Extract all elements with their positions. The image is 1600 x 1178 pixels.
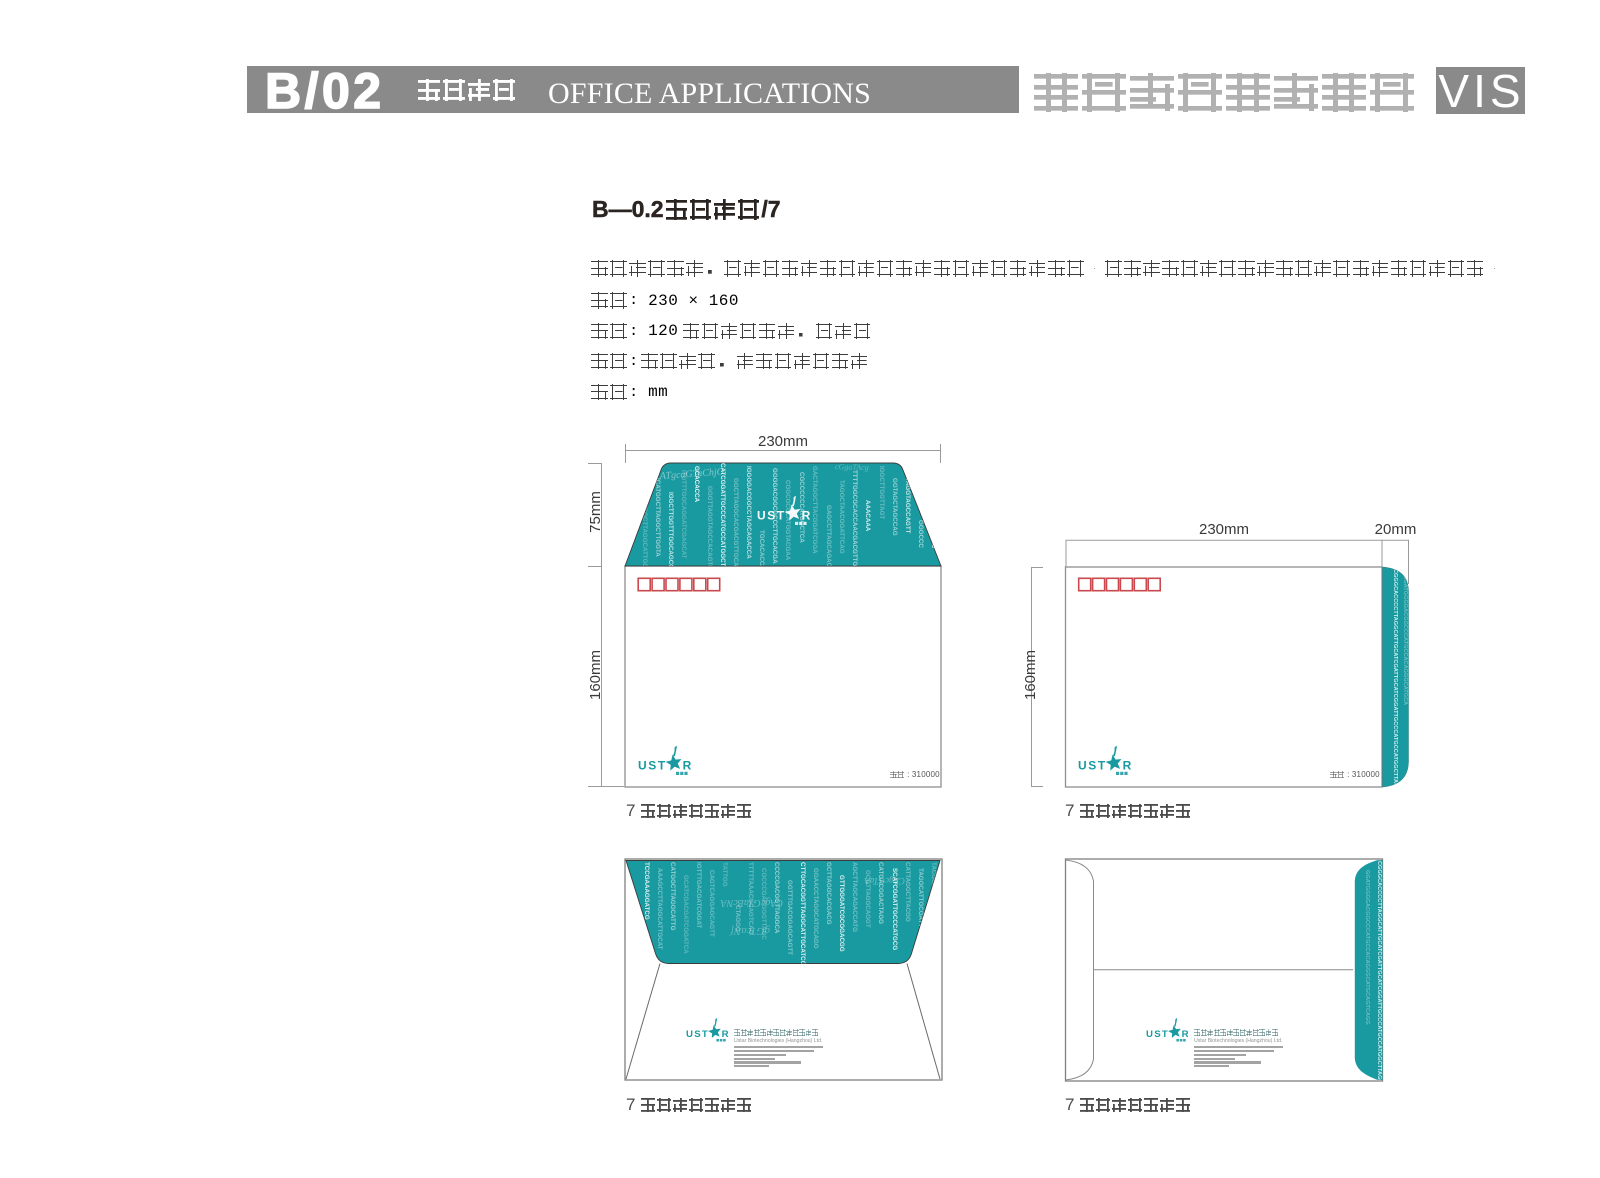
svg-text:20mm: 20mm [1375, 521, 1417, 538]
svg-text:TGCACACCA: TGCACACCA [758, 530, 765, 570]
svg-text:AAAGCCTTAGGCATTGCAT: AAAGCCTTAGGCATTGCAT [656, 868, 663, 950]
svg-text:CAgcGTaBcNA: CAgcGTaBcNA [720, 897, 783, 908]
svg-text:CATTAGGCTTACGG: CATTAGGCTTACGG [904, 862, 911, 922]
svg-text:ICATGGCTTAGGCTTGGTA: ICATGGCTTAGGCTTGGTA [654, 478, 661, 557]
svg-text:GGGCCC: GGGCCC [917, 520, 924, 548]
svg-text:CATCGGATTGCCCATGCCATGGCTTA: CATCGGATTGCCCATGCCATGGCTTA [719, 463, 726, 575]
svg-text:AAACAAA: AAACAAA [864, 500, 871, 532]
svg-text:CAGTCAGGAGCAGTT: CAGTCAGGAGCAGTT [708, 870, 715, 937]
svg-text:TCCGAAAGGATCG: TCCGAAAGGATCG [643, 862, 650, 920]
svg-text:IGGCCCTTAGGCATTGCAGG: IGGCCCTTAGGCATTGCAGG [930, 463, 937, 549]
svg-text:TATTGG: TATTGG [721, 862, 728, 887]
svg-text:GGAACCTAGGCATGCAGG: GGAACCTAGGCATGCAGG [812, 868, 819, 949]
svg-text:GGTAGGTAGCCAGTT: GGTAGGTAGCCAGTT [904, 468, 911, 534]
svg-text:cGgaTAcg: cGgaTAcg [835, 462, 869, 472]
svg-text:CGGGCACCCCTTAGGCATTGCATCGATTGC: CGGGCACCCCTTAGGCATTGCATCGATTGCATCGGATTGC… [1376, 861, 1382, 1099]
svg-text:160mm: 160mm [1022, 650, 1039, 700]
svg-text:GTTGGGATCGCGGACGG: GTTGGGATCGCGGACGG [838, 875, 845, 952]
svg-text:GCTTAGGCACGACG: GCTTAGGCACGACG [825, 862, 832, 925]
svg-text:GGATGGGGACGGCCCATGCCACAGGGCATG: GGATGGGGACGGCCCATGCCACAGGGCATGCA [1402, 575, 1408, 705]
svg-text:AGCTTAGCAGACCATG: AGCTTAGCAGACCATG [851, 862, 858, 932]
svg-text:GCATCGACGATCGGATCA: GCATCGACGATCGGATCA [682, 875, 689, 954]
svg-text:CATGACGGACTAGG: CATGACGGACTAGG [877, 862, 884, 924]
svg-text:TTTTGGCGCACCAACGACGTTG: TTTTGGCGCACCAACGACGTTG [851, 470, 858, 566]
svg-text:GACTAGGCTTACGGATCGGA: GACTAGGCTTACGGATCGGA [811, 466, 818, 554]
svg-text:gGTcaNf: gGTcaNf [729, 925, 770, 937]
svg-text:GGTTTGACGGAGCAGTT: GGTTTGACGGAGCAGTT [786, 880, 793, 955]
svg-text:IGGCTTGGTTAGT: IGGCTTGGTTAGT [878, 466, 885, 519]
svg-text:CGGGCACCCCTTAGGCATTGCATCGATTGC: CGGGCACCCCTTAGGCATTGCATCGATTGCATCGGATTGC… [1392, 569, 1398, 807]
svg-text:230mm: 230mm [758, 433, 808, 450]
svg-text:ITGTTTGGCAGGATCGAGCAT: ITGTTTGGCAGGATCGAGCAT [680, 470, 687, 559]
svg-text:IGGGGACGGCCTAGCAGACCA: IGGGGACGGCCTAGCAGACCA [745, 466, 752, 559]
svg-text:75mm: 75mm [587, 491, 604, 533]
svg-text:IGTTTGACGATCGGAT: IGTTTGACGATCGGAT [695, 862, 702, 928]
svg-text:IGGCTTGGTTTGGCAGCGG: IGGCTTGGTTTGGCAGCGG [667, 492, 674, 574]
svg-text:CTTGCACGGTTAGGCATTGCATCG: CTTGCACGGTTAGGCATTGCATCG [799, 862, 806, 966]
svg-text:160mm: 160mm [587, 650, 604, 700]
svg-text:GGCTTAGGCACGACGTTGCACGA: GGCTTAGGCACGACGTTGCACGA [732, 478, 739, 581]
svg-text:CAgcGTaA: CAgcGTaA [864, 876, 905, 886]
svg-text:230mm: 230mm [1199, 521, 1249, 538]
svg-text:GGGTTAGGTAGCCACAGTG: GGGTTAGGTAGCCACAGTG [706, 486, 713, 570]
svg-text:GGTAGCTAGCCAG: GGTAGCTAGCCAG [891, 478, 898, 536]
svg-text:CATGGCTTAGGCATTG: CATGGCTTAGGCATTG [669, 862, 676, 931]
svg-text:TAGGCTAACGGATTCAG: TAGGCTAACGGATTCAG [838, 480, 845, 554]
svg-text:GGATGGGGACGGCCCATGCCACAGGGCATG: GGATGGGGACGGCCCATGCCACAGGGCATGCAGTCAGG [1364, 870, 1370, 1025]
